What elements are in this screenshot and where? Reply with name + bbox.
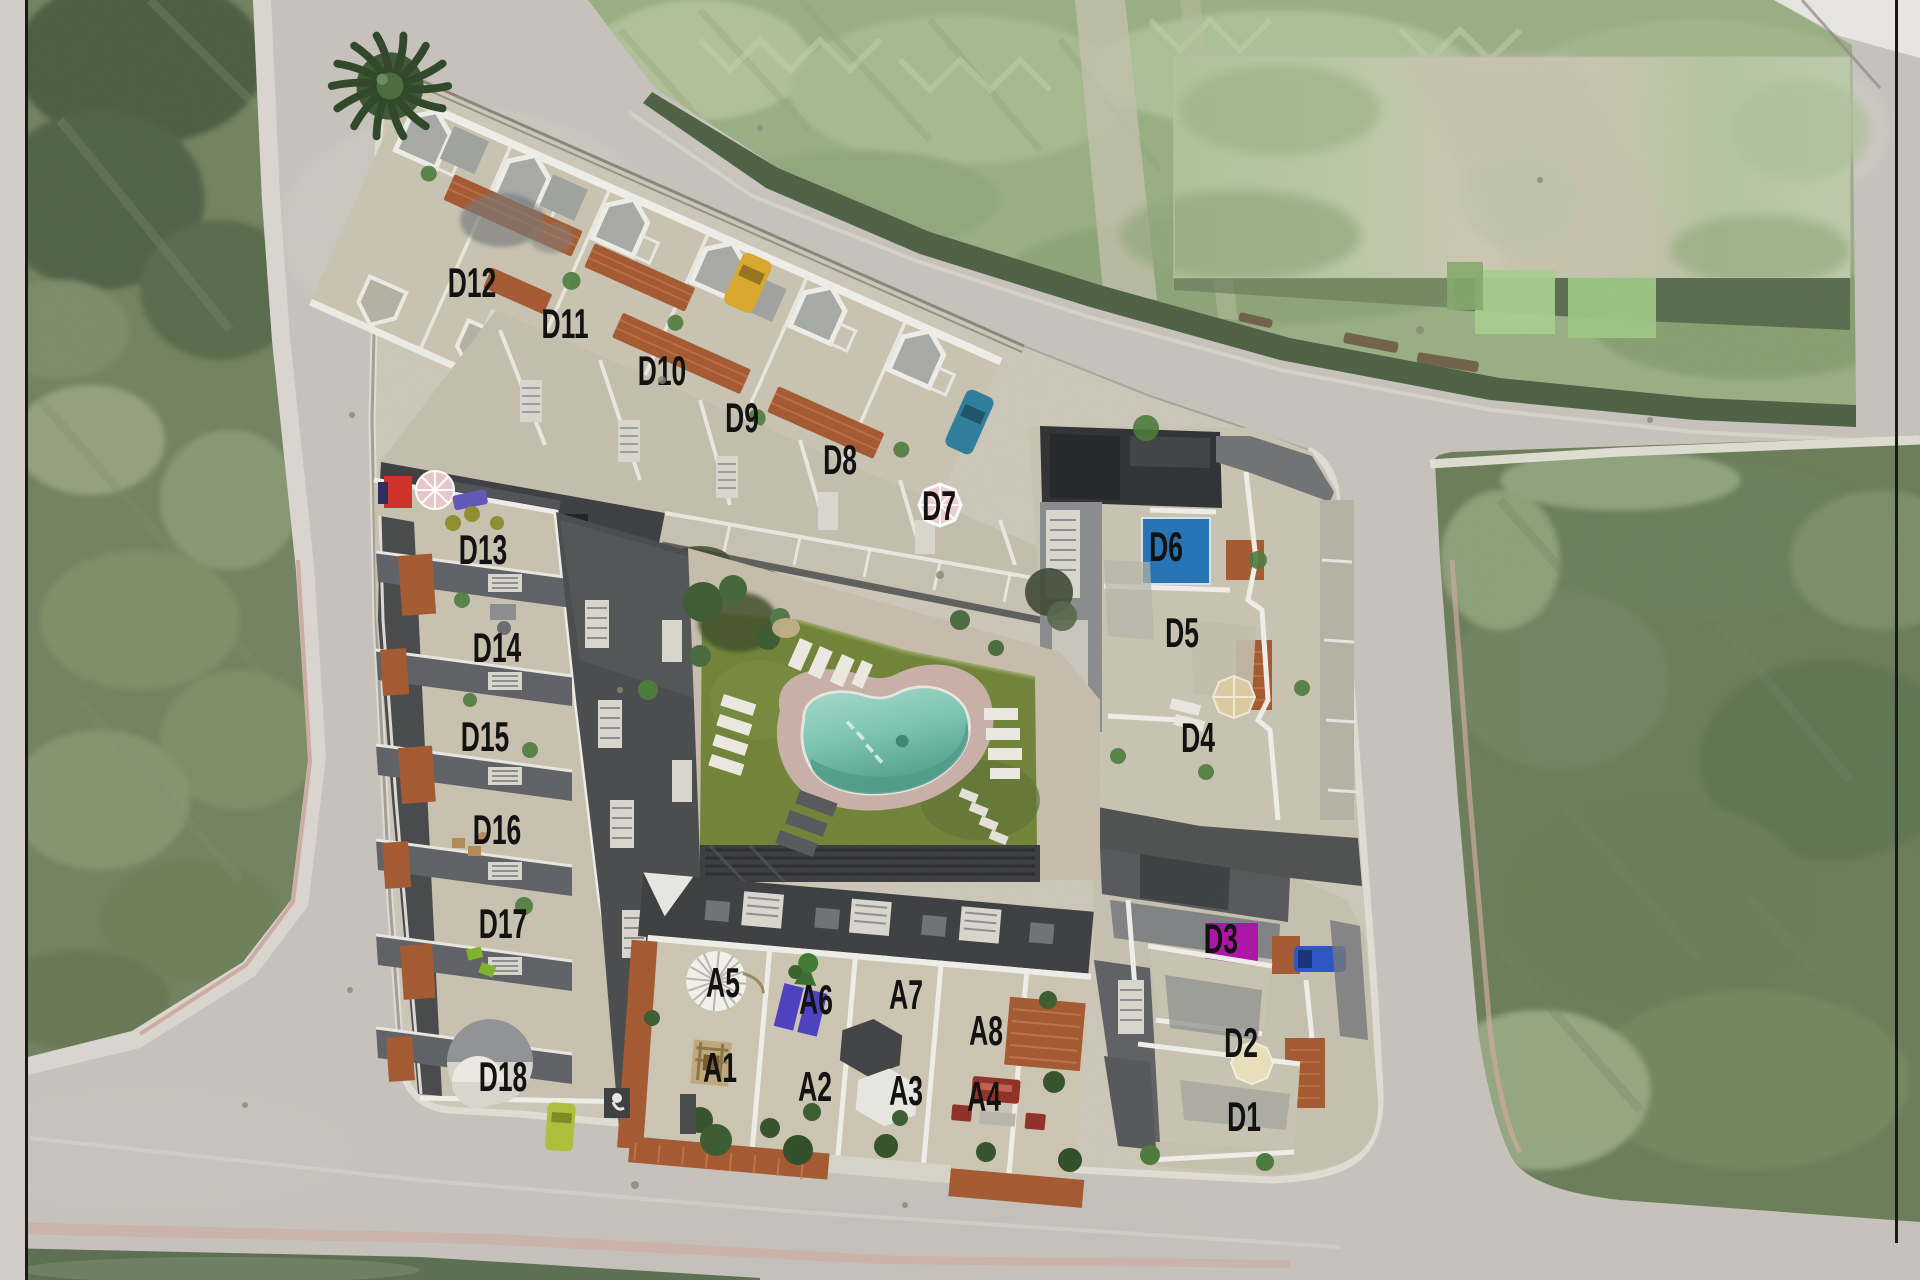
svg-text:A1: A1 — [703, 1045, 737, 1092]
svg-text:A3: A3 — [889, 1068, 923, 1115]
svg-text:D6: D6 — [1149, 524, 1183, 571]
svg-text:D4: D4 — [1181, 715, 1215, 762]
svg-text:D16: D16 — [473, 807, 522, 854]
svg-text:D11: D11 — [541, 301, 588, 348]
svg-text:D9: D9 — [725, 395, 759, 442]
svg-text:D7: D7 — [922, 483, 956, 530]
svg-text:D3: D3 — [1204, 916, 1238, 963]
svg-text:D10: D10 — [638, 348, 687, 395]
svg-text:A8: A8 — [969, 1008, 1003, 1055]
svg-text:D12: D12 — [448, 260, 497, 307]
svg-text:D2: D2 — [1224, 1020, 1258, 1067]
svg-text:A7: A7 — [889, 972, 923, 1019]
svg-text:A5: A5 — [706, 960, 740, 1007]
svg-text:D5: D5 — [1165, 610, 1199, 657]
svg-text:A2: A2 — [798, 1064, 832, 1111]
svg-text:A4: A4 — [967, 1074, 1001, 1121]
svg-text:D14: D14 — [473, 625, 522, 672]
svg-text:D1: D1 — [1227, 1094, 1261, 1141]
svg-text:D18: D18 — [479, 1054, 528, 1101]
svg-text:D15: D15 — [461, 714, 510, 761]
svg-text:D8: D8 — [823, 437, 857, 484]
svg-text:D13: D13 — [459, 527, 508, 574]
svg-text:A6: A6 — [799, 977, 833, 1024]
svg-text:D17: D17 — [479, 901, 528, 948]
